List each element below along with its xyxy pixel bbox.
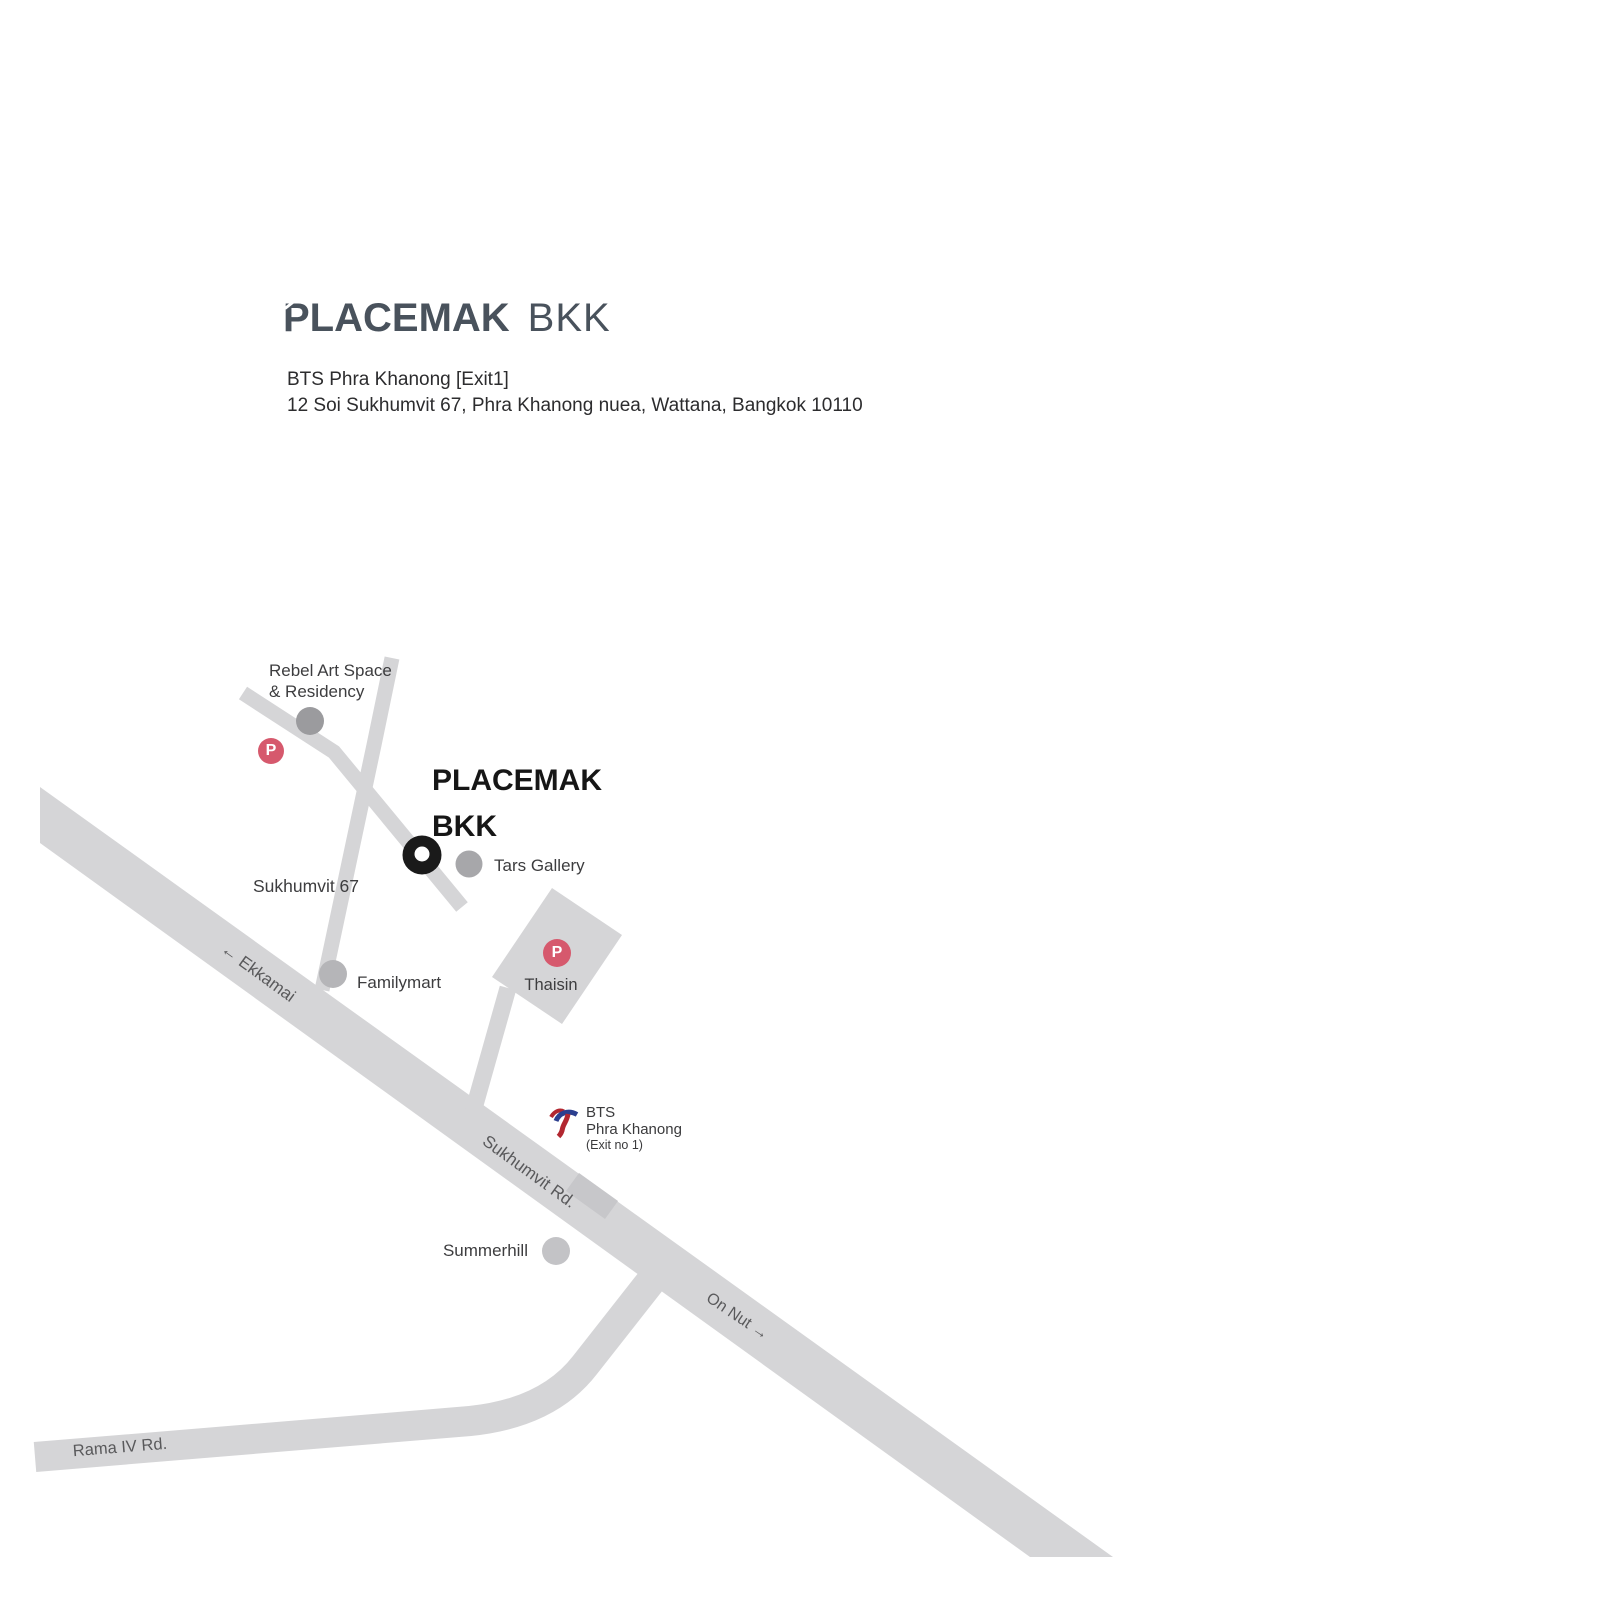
map-page: PLACEMAKBKK BTS Phra Khanong [Exit1] 12 … xyxy=(0,0,1600,1600)
parking-icon-rebel: P xyxy=(258,738,284,764)
thaisin-label: Thaisin xyxy=(524,975,577,996)
bts-line1: BTS xyxy=(586,1104,682,1121)
road-thaisin-access xyxy=(473,988,508,1112)
bts-line3: (Exit no 1) xyxy=(586,1138,682,1153)
tars-gallery-dot xyxy=(456,851,483,878)
header-logo-bkk: BKK xyxy=(528,296,611,340)
soi-sukhumvit67-label: Sukhumvit 67 xyxy=(253,876,359,897)
venue-logo-bkk: BKK xyxy=(432,804,602,850)
header-logo-placemak: PLACEMAK xyxy=(283,296,510,340)
address-line-1: BTS Phra Khanong [Exit1] xyxy=(287,367,863,393)
header-address: BTS Phra Khanong [Exit1] 12 Soi Sukhumvi… xyxy=(287,367,863,419)
bts-line2: Phra Khanong xyxy=(586,1121,682,1138)
bts-skytrain-logo-icon xyxy=(547,1106,579,1140)
road-soi-sukhumvit67 xyxy=(322,658,392,990)
tars-gallery-label: Tars Gallery xyxy=(494,855,585,876)
rebel-art-space-label: Rebel Art Space & Residency xyxy=(269,660,392,702)
familymart-label: Familymart xyxy=(357,972,441,993)
map-canvas xyxy=(0,0,1600,1600)
parking-letter: P xyxy=(552,944,563,962)
header-logo: PLACEMAKBKK xyxy=(283,296,611,341)
road-rama4-branch xyxy=(35,1281,651,1457)
venue-logo: PLACEMAK BKK xyxy=(432,758,602,850)
venue-logo-placemak: PLACEMAK xyxy=(432,758,602,804)
rebel-line2: & Residency xyxy=(269,681,392,702)
parking-letter: P xyxy=(266,742,277,760)
familymart-dot xyxy=(319,960,347,988)
rebel-art-space-dot xyxy=(296,707,324,735)
rebel-line1: Rebel Art Space xyxy=(269,660,392,681)
bts-station-label: BTS Phra Khanong (Exit no 1) xyxy=(586,1104,682,1153)
venue-location-marker-hole xyxy=(415,847,430,862)
parking-icon-thaisin: P xyxy=(543,939,571,967)
summerhill-dot xyxy=(542,1237,570,1265)
summerhill-label: Summerhill xyxy=(443,1240,528,1261)
address-line-2: 12 Soi Sukhumvit 67, Phra Khanong nuea, … xyxy=(287,393,863,419)
